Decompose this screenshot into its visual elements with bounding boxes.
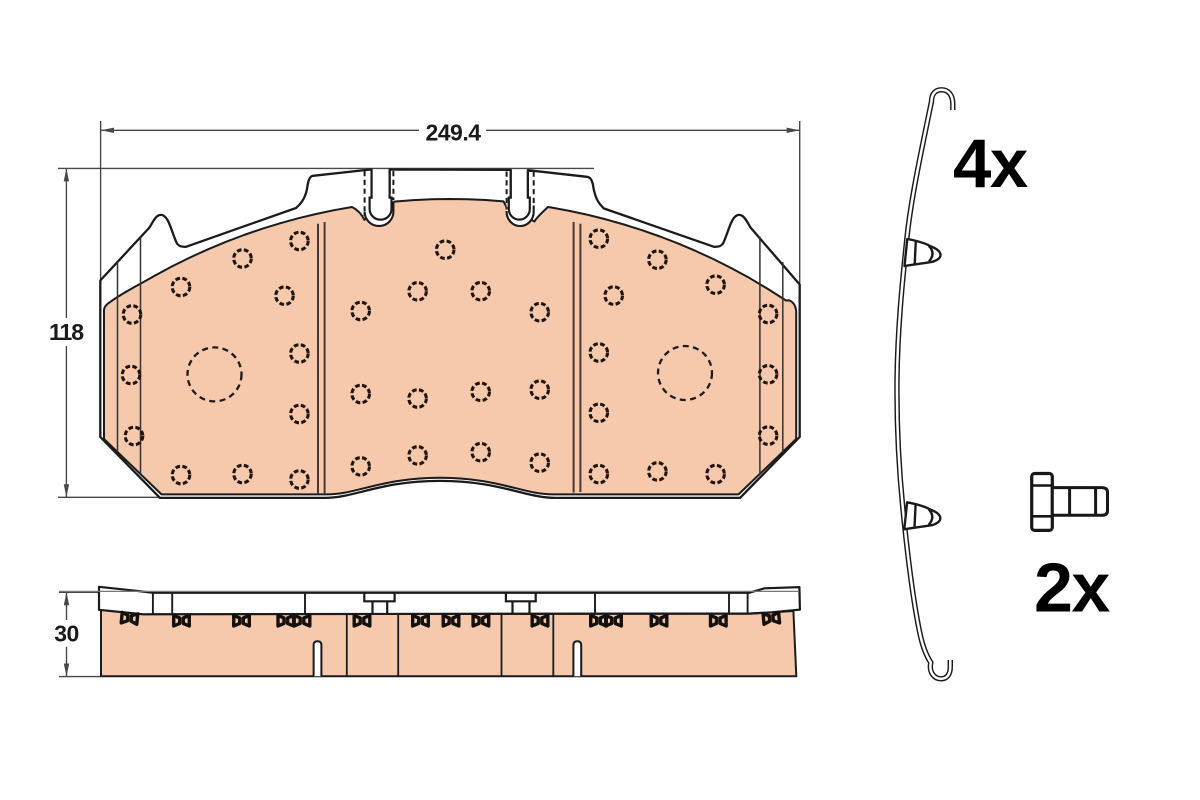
svg-text:2x: 2x xyxy=(1034,549,1110,627)
svg-text:249.4: 249.4 xyxy=(425,120,481,146)
svg-text:4x: 4x xyxy=(953,125,1028,202)
svg-text:30: 30 xyxy=(54,621,79,647)
svg-text:118: 118 xyxy=(49,319,84,345)
